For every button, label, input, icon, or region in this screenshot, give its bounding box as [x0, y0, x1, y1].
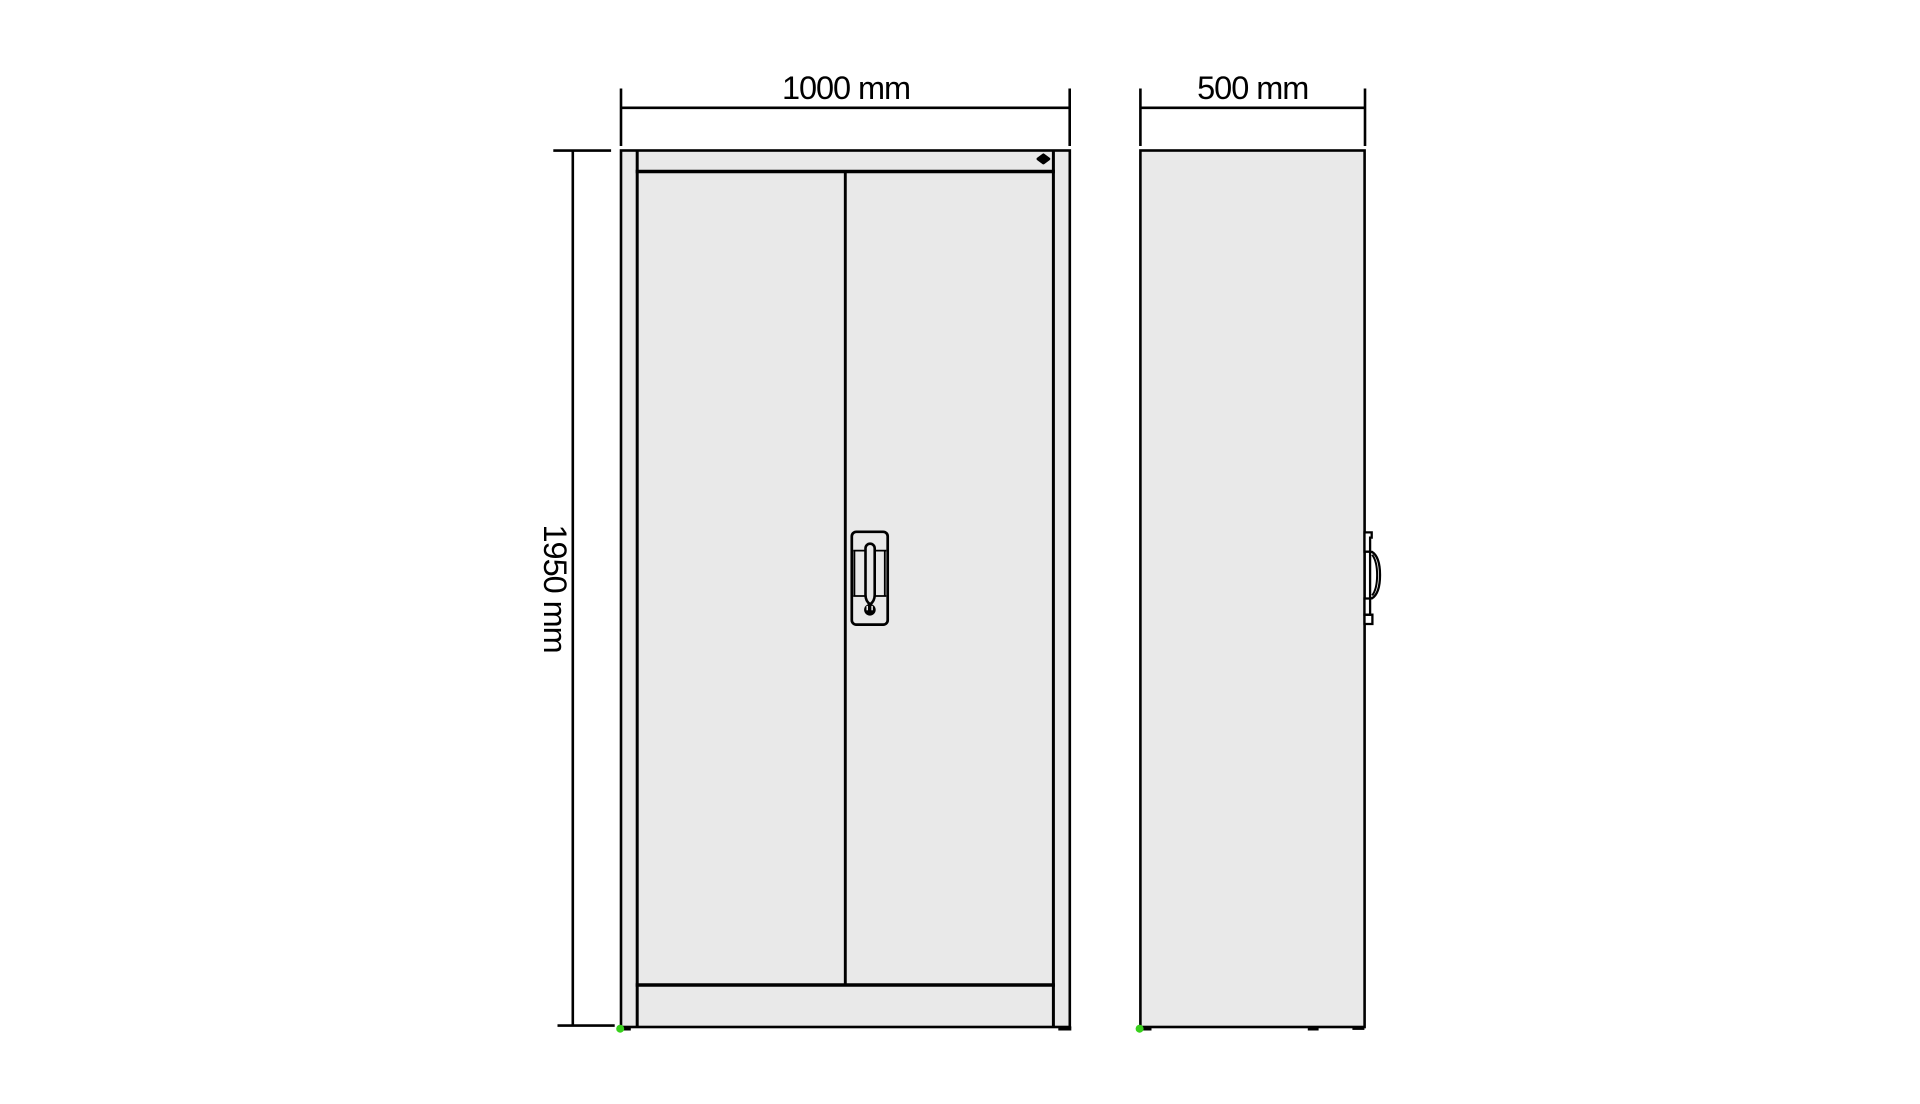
- svg-text:500 mm: 500 mm: [1197, 70, 1308, 106]
- svg-text:1950 mm: 1950 mm: [537, 525, 573, 653]
- svg-text:1000 mm: 1000 mm: [782, 70, 910, 106]
